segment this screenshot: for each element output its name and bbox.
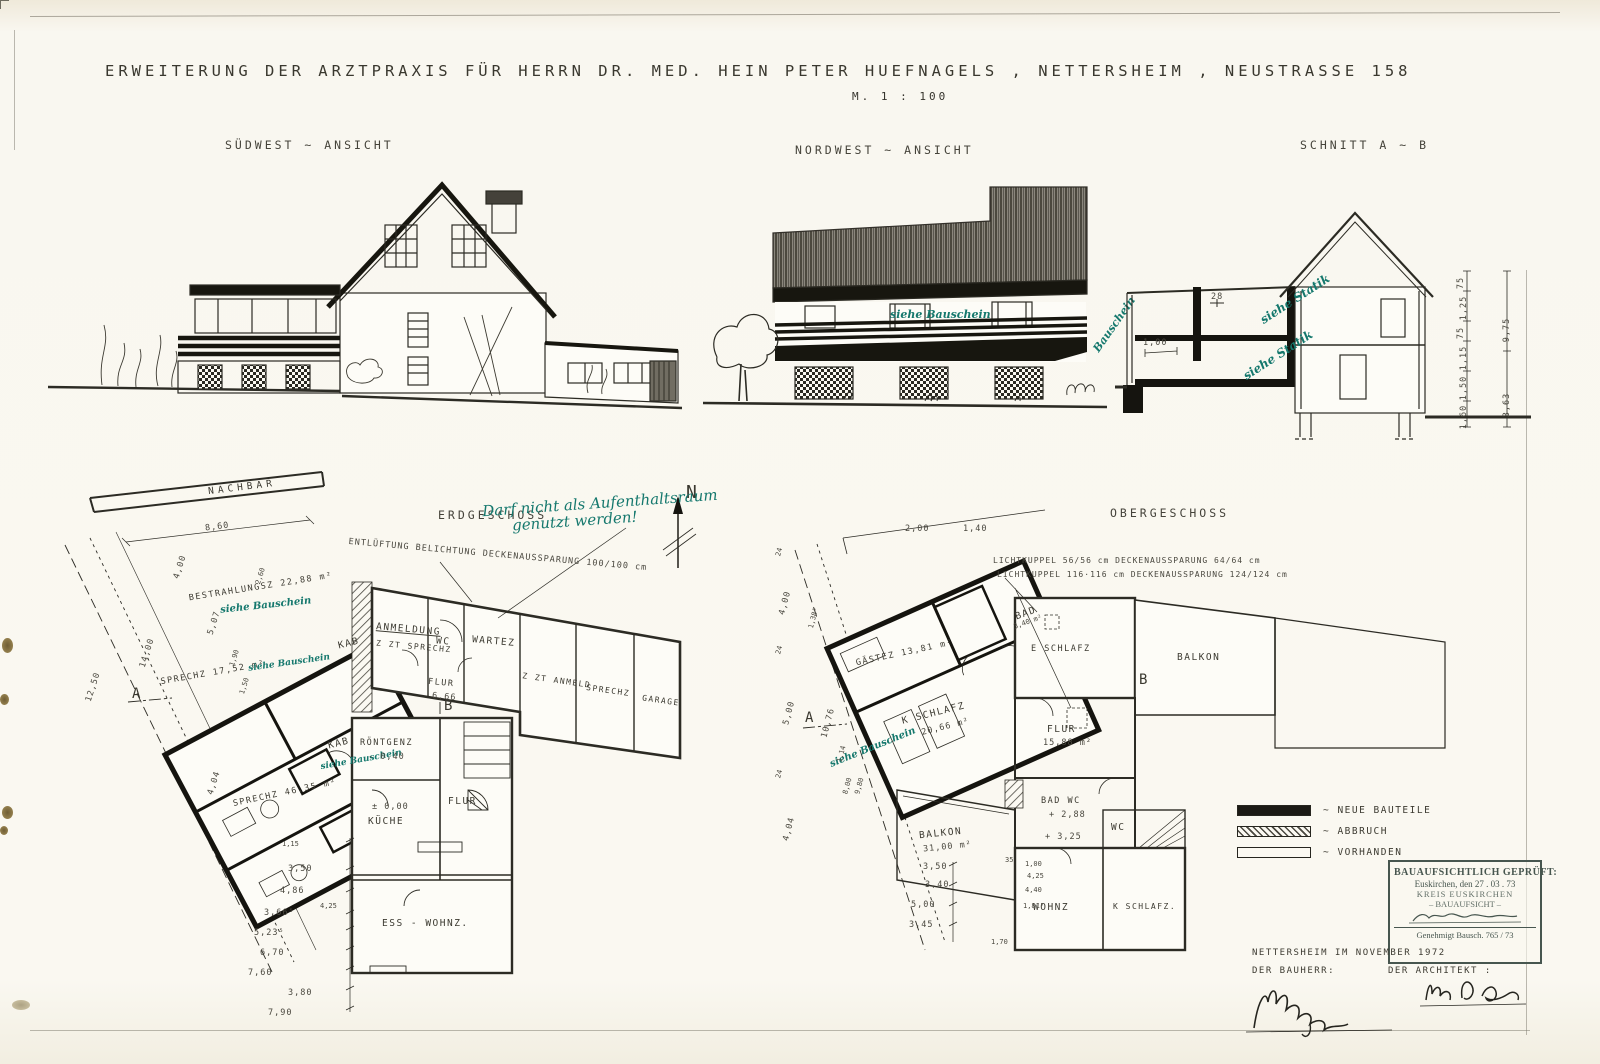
nw-siehe-bauschein-note: siehe Bauschein bbox=[890, 308, 991, 321]
schnitt-level-28: 28 bbox=[1211, 292, 1223, 302]
hatched-roof bbox=[773, 187, 1087, 302]
dimension-label: 3,63 bbox=[1502, 393, 1512, 417]
erdgeschoss-plan: ERDGESCHOSS N NACHBAR 8,60 Darf nicht al… bbox=[20, 450, 720, 1020]
dimension-label: 1,25 bbox=[1459, 296, 1469, 320]
room-balkon-1: BALKON bbox=[1177, 652, 1220, 663]
legend-swatch-solid bbox=[1237, 805, 1311, 816]
legend-label: ~ NEUE BAUTEILE bbox=[1323, 805, 1431, 816]
dimension-label: 75 bbox=[1456, 277, 1466, 289]
note-leader bbox=[498, 528, 626, 618]
drawing-sheet: ERWEITERUNG DER ARZTPRAXIS FÜR HERRN DR.… bbox=[0, 0, 1600, 1064]
footer-bauherr-label: DER BAUHERR: bbox=[1252, 966, 1335, 976]
room-flur-og: FLUR bbox=[1047, 724, 1076, 735]
dimension-label: 1,50 bbox=[1459, 376, 1469, 400]
dimension-label: 5,00 bbox=[911, 900, 935, 910]
room-e-schlafz: E SCHLAFZ bbox=[1031, 644, 1091, 654]
dimension-label: 1,40 bbox=[963, 524, 987, 534]
stamp-line-5: Genehmigt Bausch. 765 / 73 bbox=[1394, 927, 1536, 940]
section-extension bbox=[1115, 287, 1295, 413]
dimension-label: 1,15 bbox=[1459, 346, 1469, 370]
room-roentgenz-value: - 0,40 bbox=[368, 752, 405, 762]
dimension-label: 1,00 bbox=[1025, 860, 1042, 868]
legend-row-neue-bauteile: ~ NEUE BAUTEILE bbox=[1237, 803, 1517, 819]
basement-wall bbox=[795, 367, 1043, 399]
left-border-line bbox=[14, 30, 15, 150]
dimension-label: 1,81⁵ bbox=[1023, 902, 1044, 910]
vent-leader bbox=[440, 562, 472, 602]
dimension-label: 4,86 bbox=[280, 886, 304, 896]
legend-label: ~ VORHANDEN bbox=[1323, 847, 1402, 858]
dimension-label: 3,50 bbox=[923, 862, 947, 872]
section-house bbox=[1280, 213, 1531, 439]
dim-stack-og bbox=[949, 862, 957, 942]
top-border-line bbox=[30, 12, 1560, 17]
view-label-schnitt: SCHNITT A ~ B bbox=[1300, 138, 1429, 152]
dimension-label: 1,00 bbox=[1143, 338, 1167, 348]
lichtkuppel-note-1: LICHTKUPPEL 56/56 cm DECKENAUSSPARUNG 64… bbox=[993, 556, 1261, 565]
dimension-label: 6,70 bbox=[260, 948, 284, 958]
legend-swatch-hatched bbox=[1237, 826, 1311, 837]
sheet-scale: M. 1 : 100 bbox=[852, 90, 948, 103]
dimension-label: 35 bbox=[1005, 856, 1013, 864]
nachbar-wall bbox=[90, 472, 324, 546]
stamp-line-4: – BAUAUFSICHT – bbox=[1394, 899, 1536, 909]
dimension-label: 3,40 bbox=[925, 880, 949, 890]
dimension-label: 3,45 bbox=[909, 920, 933, 930]
dimension-label: 4,25 bbox=[320, 902, 337, 910]
tape-stain bbox=[2, 638, 13, 653]
dimension-label: 5,23⁵ bbox=[254, 928, 285, 938]
bauherr-signature bbox=[1244, 980, 1394, 1040]
room-bad-wc: BAD WC bbox=[1041, 796, 1081, 806]
room-wc-og: WC bbox=[1111, 822, 1125, 833]
suedwest-elevation-drawing bbox=[40, 165, 690, 430]
dimension-label: 3,66⁵ bbox=[264, 908, 295, 918]
room-wc: WC bbox=[436, 635, 451, 647]
dimension-label: 75 bbox=[1456, 327, 1466, 339]
architekt-signature bbox=[1418, 968, 1528, 1013]
room-roentgenz: RÖNTGENZ bbox=[360, 738, 413, 748]
lichtkuppel-note-2: LICHTKUPPEL 116·116 cm DECKENAUSSPARUNG … bbox=[997, 570, 1288, 579]
dimension-label: 1,60 bbox=[1459, 405, 1469, 429]
tape-stain bbox=[2, 806, 13, 819]
room-kueche-level: ± 0,00 bbox=[372, 802, 409, 812]
dimension-label: 1,70 bbox=[991, 938, 1008, 946]
section-marker-a: A bbox=[132, 686, 140, 702]
schnitt-section-drawing bbox=[1115, 175, 1535, 465]
stamp-line-2: Euskirchen, den 27 . 03 . 73 bbox=[1394, 879, 1536, 889]
dimension-label: 3,50 bbox=[288, 864, 312, 874]
tape-stain bbox=[0, 694, 9, 705]
nordwest-elevation-drawing bbox=[695, 165, 1115, 430]
room-k-schlafz-2: K SCHLAFZ. bbox=[1113, 902, 1176, 911]
sheet-title: ERWEITERUNG DER ARZTPRAXIS FÜR HERRN DR.… bbox=[105, 62, 1412, 80]
room-bad-wc-value: + 2,88 bbox=[1049, 810, 1086, 820]
stamp-line-1: BAUAUFSICHTLICH GEPRÜFT: bbox=[1394, 867, 1536, 878]
legend: ~ NEUE BAUTEILE ~ ABBRUCH ~ VORHANDEN bbox=[1237, 803, 1517, 867]
flat-extension bbox=[178, 285, 340, 393]
dimension-label: 7,60 bbox=[248, 968, 272, 978]
tree bbox=[714, 314, 778, 401]
dimension-label: 9,75 bbox=[1502, 318, 1512, 342]
room-flur-og-value: 15,88 m² bbox=[1043, 738, 1092, 748]
dimension-label: 4,40 bbox=[1025, 886, 1042, 894]
section-marker-b-og: B bbox=[1139, 672, 1147, 688]
room-flur-house: FLUR bbox=[448, 796, 477, 807]
legend-swatch-outline bbox=[1237, 847, 1311, 858]
dimension-label: 2,00 bbox=[905, 524, 929, 534]
dimension-label: 7,90 bbox=[268, 1008, 292, 1018]
footer-place-date: NETTERSHEIM IM NOVEMBER 1972 bbox=[1252, 948, 1446, 958]
view-label-nordwest: NORDWEST ~ ANSICHT bbox=[795, 143, 974, 157]
legend-row-abbruch: ~ ABBRUCH bbox=[1237, 824, 1517, 840]
section-marker-b: B bbox=[444, 698, 452, 714]
legend-row-vorhanden: ~ VORHANDEN bbox=[1237, 845, 1517, 861]
right-annex bbox=[545, 343, 678, 403]
erdgeschoss-linework bbox=[20, 450, 720, 1020]
legend-label: ~ ABBRUCH bbox=[1323, 826, 1388, 837]
section-marker-a-og: A bbox=[805, 710, 813, 726]
obergeschoss-plan: OBERGESCHOSS LICHTKUPPEL 56/56 cm DECKEN… bbox=[715, 480, 1460, 990]
obergeschoss-title: OBERGESCHOSS bbox=[1110, 506, 1229, 520]
grass bbox=[845, 384, 1094, 401]
tape-stain bbox=[0, 826, 8, 835]
room-ess-wohnz: ESS - WOHNZ. bbox=[382, 918, 469, 929]
room-kueche: KÜCHE bbox=[368, 816, 404, 827]
dimension-label: 1,15 bbox=[282, 840, 299, 848]
stamp-signature bbox=[1405, 909, 1525, 925]
level-label: + 3,25 bbox=[1045, 832, 1082, 842]
view-label-suedwest: SÜDWEST ~ ANSICHT bbox=[225, 138, 394, 152]
stamp-line-3: KREIS EUSKIRCHEN bbox=[1394, 889, 1536, 899]
dimension-label: 3,80 bbox=[288, 988, 312, 998]
dimension-label: 4,25 bbox=[1027, 872, 1044, 880]
